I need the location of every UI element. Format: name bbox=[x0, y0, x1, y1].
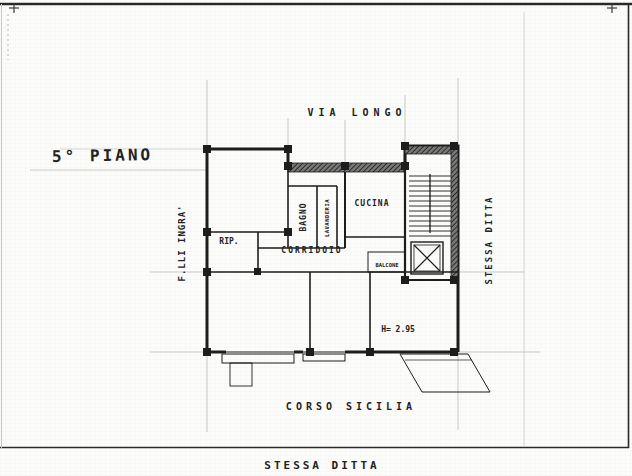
room-height-note: H= 2.95 bbox=[381, 325, 415, 334]
room-label-balcone: BALCONE bbox=[375, 262, 398, 268]
elevator-shaft bbox=[411, 242, 443, 274]
floor-label: 5° PIANO bbox=[52, 145, 153, 166]
room-label-lavanderia: LAVANDERIA bbox=[324, 199, 330, 237]
street-label-bottom: CORSO SICILIA bbox=[286, 401, 416, 412]
neighbor-label-right: STESSA DITTA bbox=[484, 195, 494, 284]
neighbor-label-bottom: STESSA DITTA bbox=[264, 459, 379, 472]
room-label-cucina: CUCINA bbox=[355, 199, 390, 208]
room-label-bagno: BAGNO bbox=[299, 202, 308, 231]
staircase bbox=[409, 174, 451, 236]
neighbor-label-left: F.LLI INGRA' bbox=[177, 204, 187, 281]
street-label-top: VIA LONGO bbox=[307, 107, 406, 118]
room-label-rip: RIP. bbox=[219, 237, 238, 246]
registration-marks bbox=[8, 3, 617, 60]
scanned-floor-plan-sheet: { "sheet": { "floor_label": "5° PIANO", … bbox=[0, 0, 632, 476]
balconies bbox=[222, 354, 490, 392]
room-label-corridoio: CORRIDOIO bbox=[281, 246, 342, 255]
sheet-frame bbox=[0, 4, 632, 448]
